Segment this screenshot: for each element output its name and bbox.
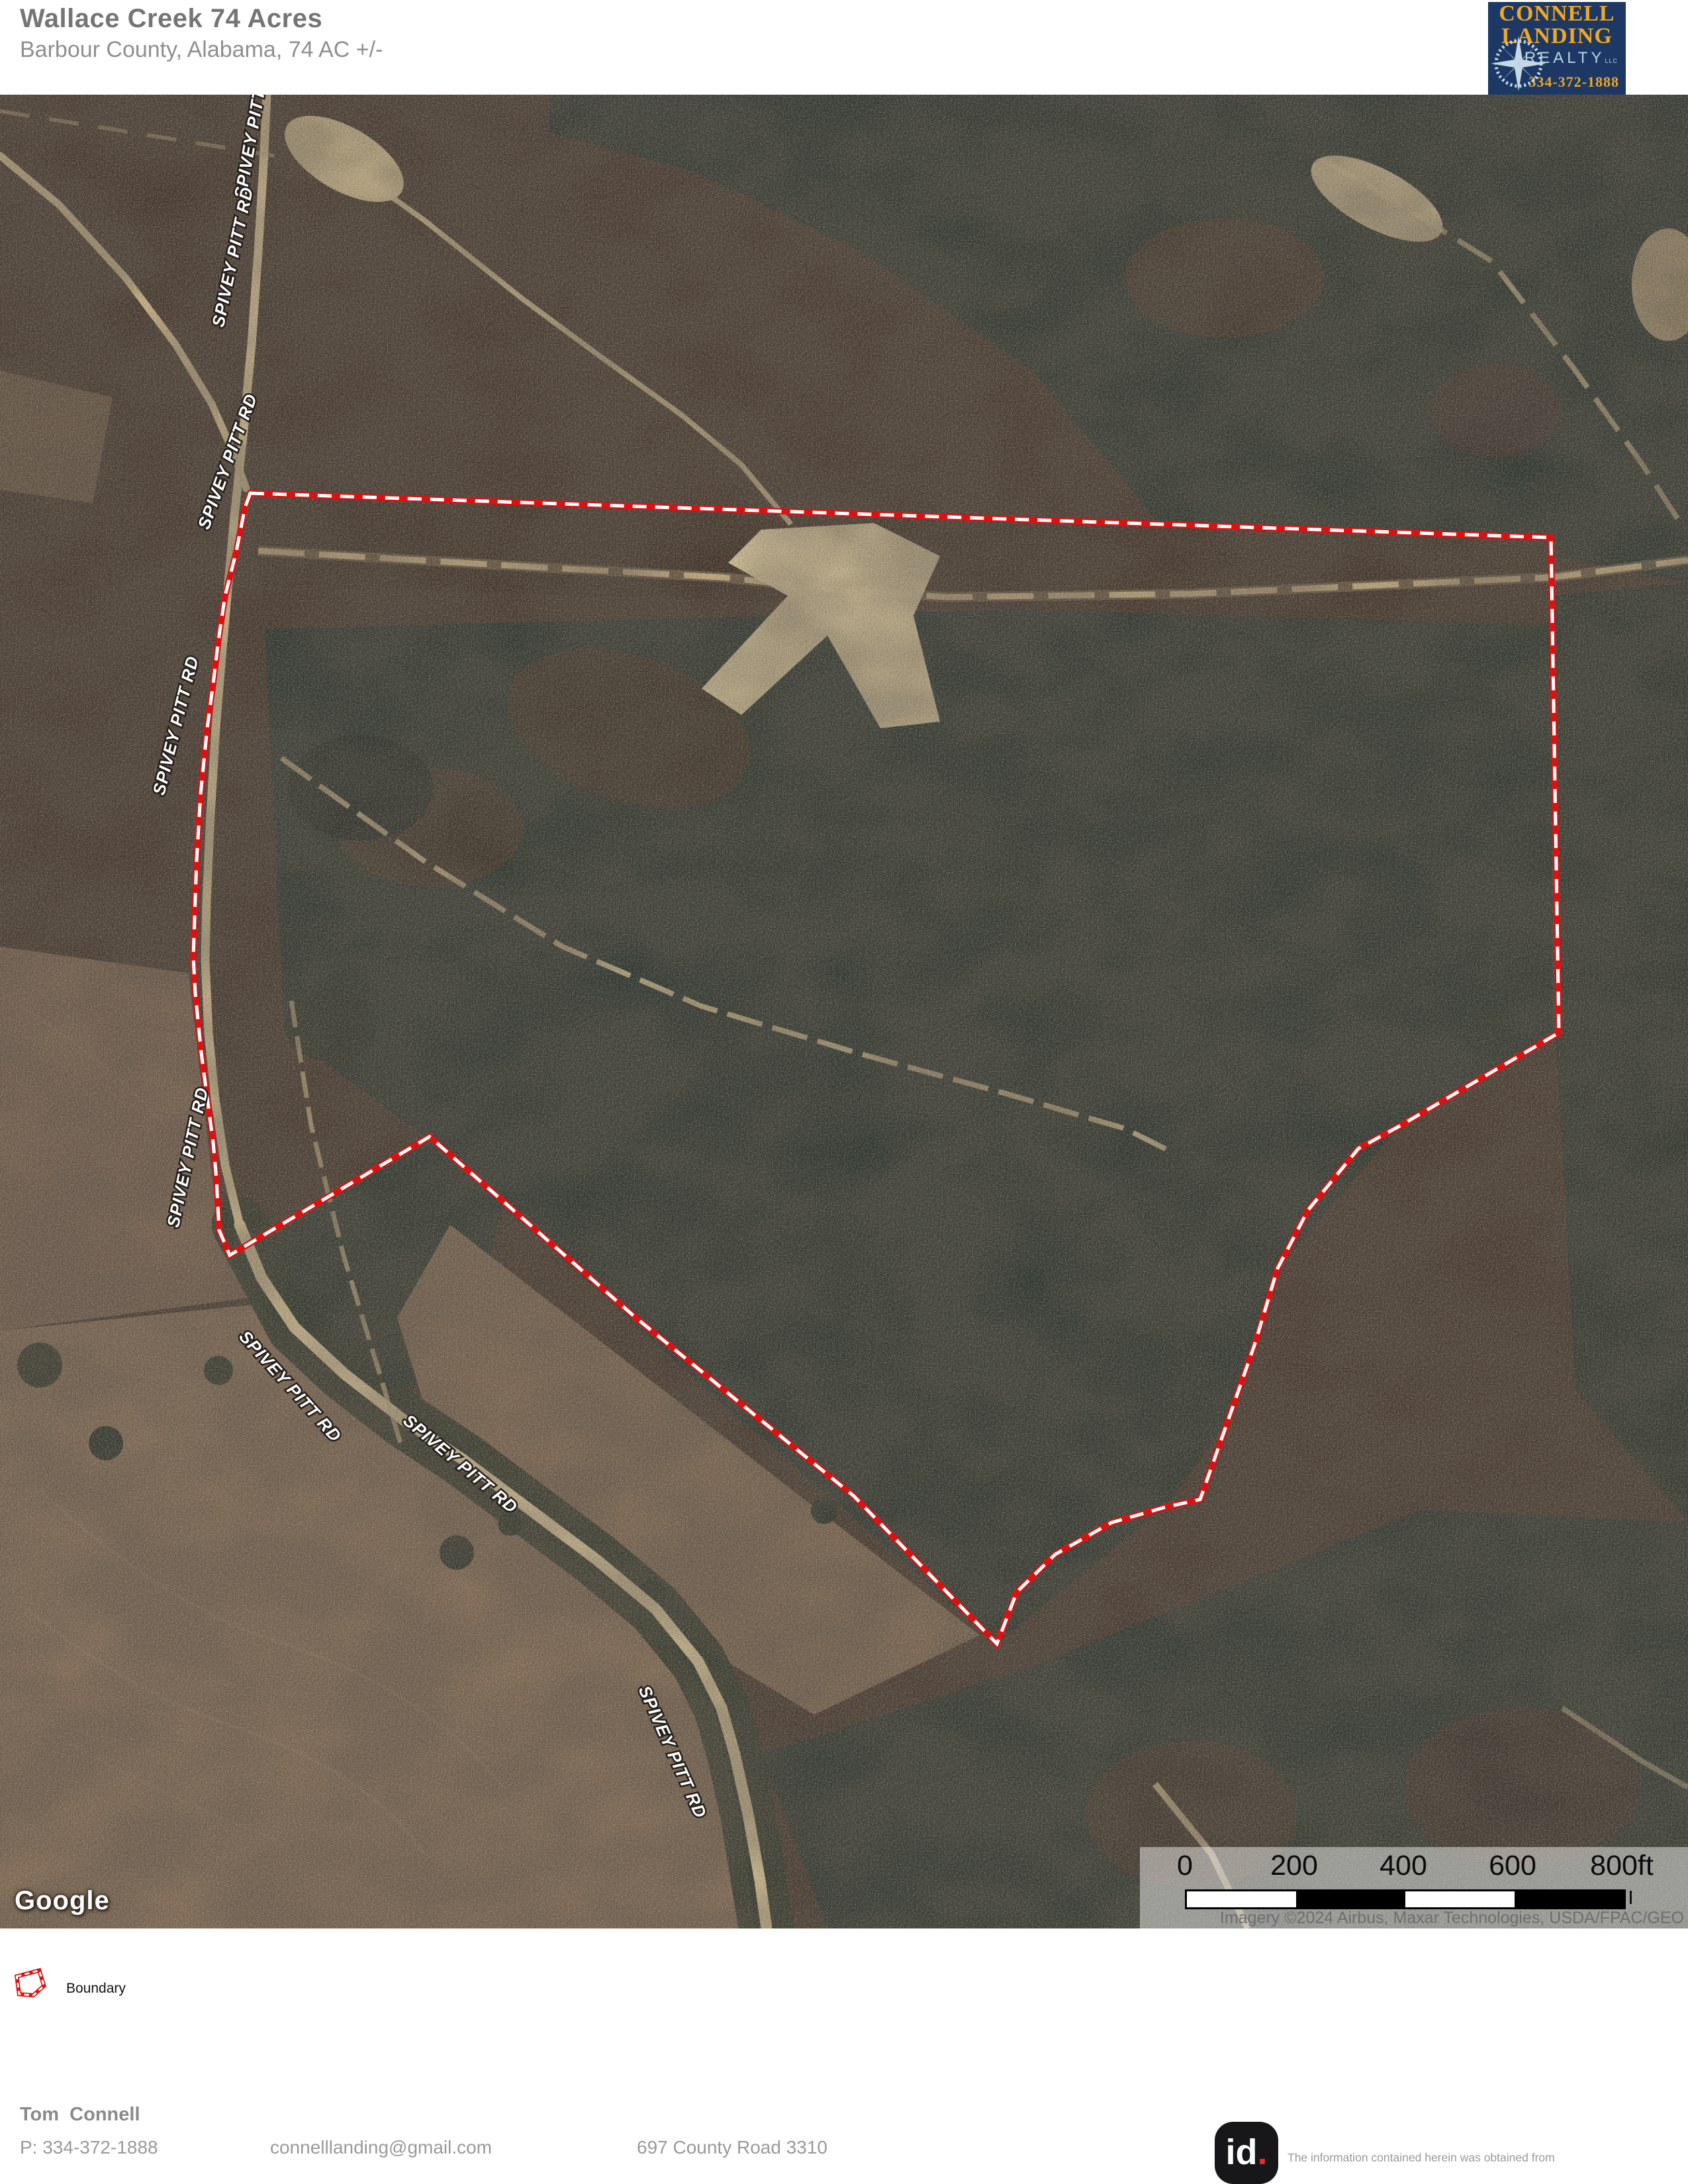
aerial-imagery: SPIVEY PITT RDSPIVEY PITT RDSPIVEY PITT … [0, 95, 1688, 1928]
footer: Tom Connell P: 334-372-1888 connelllandi… [0, 2065, 1688, 2184]
legend: Boundary [0, 1946, 1688, 2019]
disclaimer-text: The information contained herein was obt… [1288, 2120, 1573, 2184]
agent-address: 697 County Road 3310 [637, 2137, 827, 2158]
scale-bar: 0200400600800ft Imagery ©2024 Airbus, Ma… [1140, 1847, 1688, 1928]
scale-tick: 200 [1270, 1850, 1318, 1882]
page-subtitle: Barbour County, Alabama, 74 AC +/- [20, 37, 383, 63]
satellite-map: SPIVEY PITT RDSPIVEY PITT RDSPIVEY PITT … [0, 95, 1688, 1928]
agent-phone: P: 334-372-1888 [20, 2137, 158, 2158]
google-logo[interactable]: Google [15, 1886, 110, 1916]
boundary-legend-icon [13, 1966, 46, 2005]
agent-name: Tom Connell [20, 2104, 140, 2126]
flyer-page: Wallace Creek 74 Acres Barbour County, A… [0, 0, 1688, 2184]
scale-bar-end-tick [1630, 1891, 1632, 1904]
page-title: Wallace Creek 74 Acres [20, 4, 322, 34]
imagery-attribution: Imagery ©2024 Airbus, Maxar Technologies… [1220, 1909, 1684, 1928]
brand-logo: CONNELL LANDING REALTYLLC 334-372-1888 [1488, 2, 1626, 95]
scale-bar-segments [1185, 1889, 1626, 1909]
scale-tick: 800ft [1590, 1850, 1654, 1882]
scale-tick: 0 [1177, 1850, 1193, 1882]
compass-rose-icon [1489, 33, 1548, 95]
land-id-logo: id. [1215, 2122, 1278, 2184]
brand-line1: CONNELL [1488, 3, 1626, 24]
agent-email[interactable]: connelllanding@gmail.com [270, 2137, 492, 2158]
scale-tick: 400 [1380, 1850, 1427, 1882]
scale-tick: 600 [1489, 1850, 1536, 1882]
legend-label-boundary: Boundary [66, 1981, 126, 1997]
